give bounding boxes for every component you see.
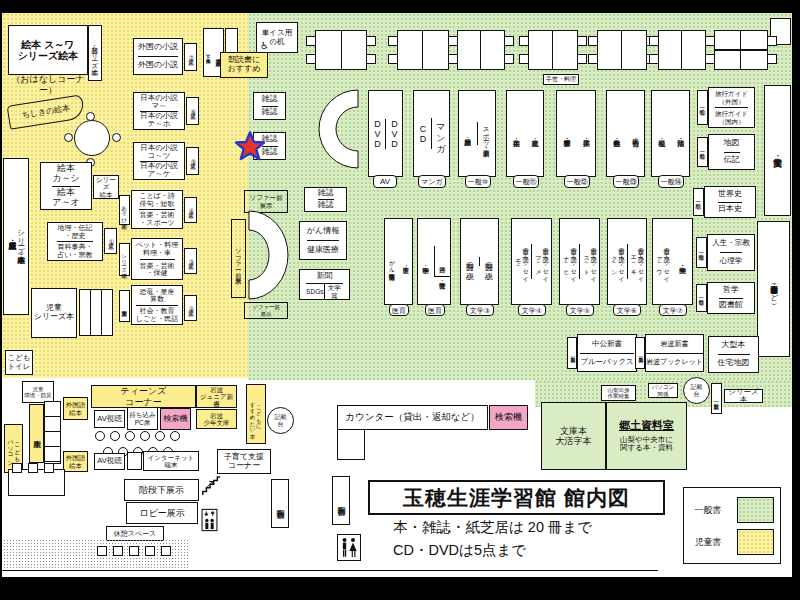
av-seat-1: AV視聴 <box>94 410 125 428</box>
shelf-magazines-1: 雑誌雑誌 <box>253 92 286 120</box>
reading-table <box>528 30 578 70</box>
shelf-iwanami-junior: 岩波 ジュニア新書 <box>196 385 237 408</box>
stairs-icon <box>201 474 221 498</box>
shelf-iwanami-shonen: 岩波 少年文庫 <box>196 409 237 429</box>
shelf-new-books-1: 新刊図書 <box>271 479 289 528</box>
shelf-tab-ippan-shinsho-1: 一般新書 <box>567 337 577 369</box>
shelf-tab-mukashibanashi: 昔話・シリーズ絵本 <box>88 25 102 81</box>
legend-general-swatch <box>737 497 774 523</box>
shelf-label-ippan13: 一般⑬ <box>613 175 639 188</box>
display-under-stairs: 階段下展示 <box>124 479 199 501</box>
shelf-label-ippan10: 一般⑩ <box>465 175 491 188</box>
shelf-foreign-picturebooks-2: 外国語 絵本 <box>63 451 88 472</box>
shelf-label-iiku-2: 医育 <box>425 304 445 316</box>
shelf-tab-ippan16: 一般⑯ <box>697 137 708 167</box>
chair <box>388 54 398 64</box>
sofa-crescent-upper <box>316 87 360 171</box>
shelf-label-bungaku7: 文学⑦ <box>659 304 687 316</box>
chair <box>28 463 38 473</box>
internet-terminal: インターネット 端末 <box>143 451 199 471</box>
bench <box>129 546 139 556</box>
shelf-dvd: DVDDVD <box>368 90 403 177</box>
service-counter-leg <box>337 429 365 460</box>
reading-table-quad <box>714 30 768 70</box>
bench <box>145 546 155 556</box>
search-machine-main: 検索機 <box>489 405 528 430</box>
shelf-tab-jido7: 児童⑦ <box>184 43 197 71</box>
shelf-jp-essay-mo: 日本の小説・エッセイ モ～日本の小説・エッセイ フ～メ <box>511 218 552 305</box>
shelf-math-folklore: 数学・自然科学民俗・教育 <box>606 90 645 177</box>
shelf-travel-guide: 旅行ガイド （外国）旅行ガイド （国内） <box>708 87 755 128</box>
shelf-tab-jido5: 児童⑤ <box>186 147 199 175</box>
lending-rule-books: 本・雑誌・紙芝居は 20 冊まで <box>393 518 668 537</box>
room-kyodo-shiryo: 郷土資料室 山梨や中央市に 関する本・資料 <box>606 402 687 470</box>
chair <box>366 36 376 46</box>
shelf-label-bungaku6: 文学⑥ <box>613 304 641 316</box>
shelf-world-japan-history: 世界史日本史 <box>704 186 756 218</box>
shelf-tax-politics: 税金・福祉政治・法律 <box>651 90 690 177</box>
shelf-picturebooks-su-wa: 絵本 ス～ワ シリーズ絵本 <box>8 25 88 75</box>
shelf-magazines-3: 雑誌雑誌 <box>304 187 347 212</box>
sofa-crescent-lower <box>247 208 291 302</box>
shelf-series-bon: シリーズ本 <box>724 389 763 403</box>
shelf-label-iiku-1: 医育 <box>389 304 409 316</box>
shelf-reference-books: 参考図書（図鑑・辞書など） <box>757 221 790 357</box>
byod-pc-seat: 持ち込み PC席 <box>127 407 158 430</box>
shelf-jp-essay-a-poetry: 日本の小説・エッセイ ア～ウ文学・俳句・詩 <box>652 218 693 305</box>
service-counter: カウンター（貸出・返却など） <box>337 405 488 430</box>
search-machine-teens: 検索機 <box>160 408 191 430</box>
wall-line <box>2 570 658 571</box>
shelf-life-religion: 人生・宗教心理学 <box>707 234 755 271</box>
bench <box>97 546 107 556</box>
shelf-tab-series-ehon: シリーズ絵本 <box>119 243 130 276</box>
shelf-jido-series: 児童 シリーズ本 <box>31 288 77 338</box>
reading-table <box>597 30 647 70</box>
shelf-medical-2: 医学・医学 洋書 育児・医学 <box>417 218 451 305</box>
bookshelf-cells <box>79 289 113 336</box>
chair <box>767 36 777 46</box>
av-seat-2: AV視聴 <box>94 453 125 470</box>
chair <box>519 54 529 64</box>
chair <box>112 133 121 142</box>
legend-children-label: 児童書 <box>690 536 726 548</box>
lobby-table <box>8 469 65 496</box>
chair <box>705 36 715 46</box>
note-shugei-ryori: 手芸・料理 <box>543 74 579 85</box>
shelf-label-ippan12: 一般⑫ <box>564 175 590 188</box>
shelf-jp-essay-ku: 日本の小説・エッセイ ク～シ日本の小説・エッセイ エ～キ <box>607 218 647 305</box>
map-title: 玉穂生涯学習館 館内図 <box>368 480 665 515</box>
shelf-label-manga: マンガ <box>418 175 446 188</box>
shelf-jp-novels-ko: 日本の小説 コ～ツ日本の小説 ア～ケ <box>133 142 185 180</box>
chair <box>306 54 316 64</box>
room-bunkobon: 文庫本 大活字本 <box>541 402 606 470</box>
chair <box>306 36 316 46</box>
shelf-tab-ippan17: 一般⑰ <box>693 188 704 216</box>
wheelchair-desk: 車イス用 の机 ♿ <box>256 22 298 53</box>
shelf-label-bungaku3: 文学③ <box>466 304 494 316</box>
chair <box>519 36 529 46</box>
chair <box>705 54 715 64</box>
shelf-large-picturebooks: 大型絵本 <box>29 404 44 463</box>
shelf-tab-ippan18: 一般⑱ <box>696 237 707 268</box>
shelf-foreign-novels: 外国の小説外国の小説 <box>460 218 499 305</box>
shelf-tab-series-ehon2: シリーズ 絵本 <box>93 175 119 199</box>
chair <box>448 36 458 46</box>
sofa-front-display-bottom: ソファー前 展示 <box>244 302 288 319</box>
shelf-tab-jido6: 児童⑥ <box>186 97 199 125</box>
shelf-pc-related: パソコン 関係 <box>648 383 678 398</box>
shelf-kids-environment: 児童 環境・防災 <box>22 381 54 403</box>
frame-left <box>0 0 2 600</box>
shelf-jp-novels-ma: 日本の小説 マ～日本の小説 テ～ホ <box>133 92 185 130</box>
shelf-jp-essay-na: 日本の小説・エッセイ ナ～ヒ日本の小説・エッセイ ス～ト <box>559 218 600 305</box>
display-lobby: ロビー展示 <box>126 502 198 524</box>
chair <box>504 54 514 64</box>
shelf-geography-biography: 地理・伝記 ・歴史百科事典・ 占い・宗教 <box>47 222 103 261</box>
shelf-kotoba-poetry: ことば・詩 俳句・短歌音楽・芸術 ・スポーツ <box>131 190 183 229</box>
shelf-tab-jido3: 児童③ <box>184 248 197 274</box>
shelf-new-books-2: 新刊図書 <box>332 476 350 525</box>
restroom-icon <box>339 537 359 559</box>
restroom <box>337 534 361 561</box>
bench <box>113 546 123 556</box>
shelf-tab-jido2: 児童② <box>184 295 197 321</box>
lending-rule-av: CD・DVDは5点まで <box>393 541 668 560</box>
shelf-map-biography: 地図伝記 <box>708 134 755 170</box>
kids-toilet: こども トイレ <box>5 350 33 375</box>
shelf-tab-ippan15: 一般⑮ <box>697 90 708 125</box>
shelf-newspaper-sdgs: 新聞 SDGs 文学賞 <box>299 269 350 300</box>
shelf-medical-1: がん情報・医療・医学医療・医学 <box>384 218 413 305</box>
chair <box>577 54 587 64</box>
shelf-tab-ippan-shinsho-2: 一般新書 <box>635 337 645 369</box>
shelf-craft-technology: 手芸・料理・家事技術・工業 <box>556 90 596 177</box>
legend-general-label: 一般書 <box>690 504 726 516</box>
shelf-tab-asobi-ehon: あそび絵本 <box>119 195 130 225</box>
shelf-label-av: AV <box>373 175 397 188</box>
reading-table <box>315 30 367 70</box>
shelf-label-bungaku4: 文学④ <box>518 304 546 316</box>
chair <box>588 54 598 64</box>
stool <box>170 431 180 441</box>
chair <box>577 36 587 46</box>
bookshelf-cells <box>44 401 61 464</box>
shelf-philosophy-library: 哲学図書館 <box>707 282 755 314</box>
shelf-dinosaur-science: 恐竜・星座 算数社会・教育 しごと・民話 <box>131 285 183 325</box>
shelf-tab-jido1: 児童① <box>104 228 117 254</box>
chair <box>44 463 54 473</box>
chair <box>388 36 398 46</box>
chair <box>649 54 659 64</box>
stool <box>110 431 120 441</box>
shelf-tab-jido4: 児童④ <box>184 197 197 223</box>
shelf-cd-manga: CDマンガ <box>413 90 450 177</box>
shelf-large-books: 大型本住宅地図 <box>708 336 759 373</box>
library-floor-map: 絵本 ス～ワ シリーズ絵本 昔話・シリーズ絵本 （おはなしコーナー） ちしきの絵… <box>0 0 800 600</box>
display-asadoku-recommend: 朝読書に おすすめ <box>220 52 268 78</box>
shelf-chuko-shinsho: 中公新書ブルーバックス <box>577 334 637 372</box>
shelf-tab-ippan-shinsho-3: 一般新書 <box>711 383 722 414</box>
stool <box>155 431 165 441</box>
stool <box>125 431 135 441</box>
display-kids-recommend: こどもに すすめたい本 <box>246 384 266 444</box>
shelf-picturebooks-ka-shi: 絵本 カ～シ絵本 ア～オ <box>40 162 92 210</box>
shelf-cancer-health: がん情報健康医療 <box>299 221 347 260</box>
reading-table <box>658 30 706 70</box>
frame-top <box>0 0 800 13</box>
shelf-iwanami-shinsho: 岩波新書岩波ブックレット <box>645 334 704 372</box>
chair <box>12 463 22 473</box>
shelf-art-tourism: 芸術・美術観光・産業 <box>506 90 544 177</box>
reading-table <box>397 30 449 70</box>
chair <box>649 36 659 46</box>
elevator-icon <box>201 508 218 532</box>
shelf-bungaku-zenshu: 文学全集・叢書 <box>764 85 791 216</box>
shelf-pet-cooking: ペット・料理 料理・車音楽・芸術 ・保健 <box>131 238 183 280</box>
writing-stand-right: 記載 台 <box>683 377 710 404</box>
shelf-tab-ippan19: 一般⑲ <box>696 284 707 312</box>
frame-right <box>792 0 800 600</box>
reading-table <box>457 30 505 70</box>
wheelchair-icon: ♿ <box>260 40 269 51</box>
chair <box>86 112 95 121</box>
chair <box>64 133 73 142</box>
shelf-label-bungaku5: 文学⑤ <box>566 304 594 316</box>
shelf-tab-jido-ogata: 児童大型本 <box>119 290 130 322</box>
shelf-foreign-picturebooks-1: 外国語 絵本 <box>63 397 88 420</box>
chair <box>588 36 598 46</box>
shelf-label-ippan11: 一般⑪ <box>513 175 539 188</box>
shelf-foreign-novels-kids: 外国の小説外国の小説 <box>133 38 183 75</box>
ohanashi-corner-label: （おはなしコーナー） <box>4 78 92 91</box>
writing-stand-left: 記載 台 <box>267 407 294 434</box>
shelf-language-sports: 日本語・外国語スポーツ・音楽・演劇 <box>458 90 496 177</box>
legend-children-swatch <box>737 529 774 555</box>
chair <box>767 54 777 64</box>
childcare-support-corner: 子育て支援 コーナー <box>217 449 271 474</box>
shelf-label-ippan14: 一般⑭ <box>658 175 684 188</box>
round-table <box>74 120 110 156</box>
teens-corner-header: ティーンズ コーナー <box>91 385 196 408</box>
chair <box>448 54 458 64</box>
chair <box>504 36 514 46</box>
display-yamanashi-authors: 山梨出身 作家特集 <box>601 385 636 401</box>
small-box <box>127 452 142 470</box>
stool <box>140 431 150 441</box>
frame-bottom <box>0 577 800 600</box>
shelf-series-tenji-strip: シリーズ本・点字絵本・布絵本・ 紙芝居・大型紙芝居・大型絵本 <box>3 158 29 315</box>
stool <box>95 431 105 441</box>
current-location-star <box>234 130 266 162</box>
sofa-front-display-side: ソファー前 展示 <box>231 219 246 298</box>
chair <box>366 54 376 64</box>
bench <box>161 546 171 556</box>
